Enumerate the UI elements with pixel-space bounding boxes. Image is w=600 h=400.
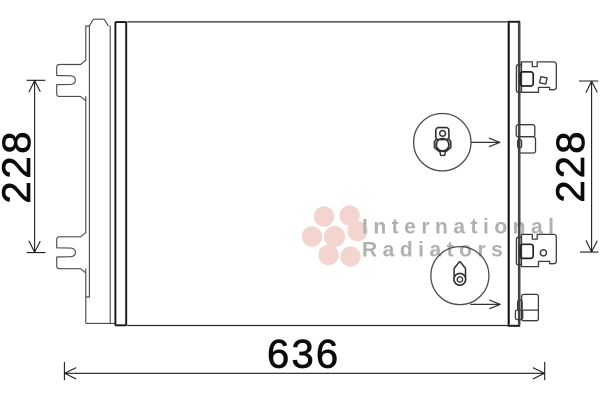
svg-text:636: 636	[267, 333, 340, 377]
svg-text:Radiators: Radiators	[362, 239, 508, 262]
svg-text:228: 228	[549, 129, 593, 202]
svg-text:International: International	[362, 216, 560, 239]
svg-text:228: 228	[0, 129, 39, 204]
